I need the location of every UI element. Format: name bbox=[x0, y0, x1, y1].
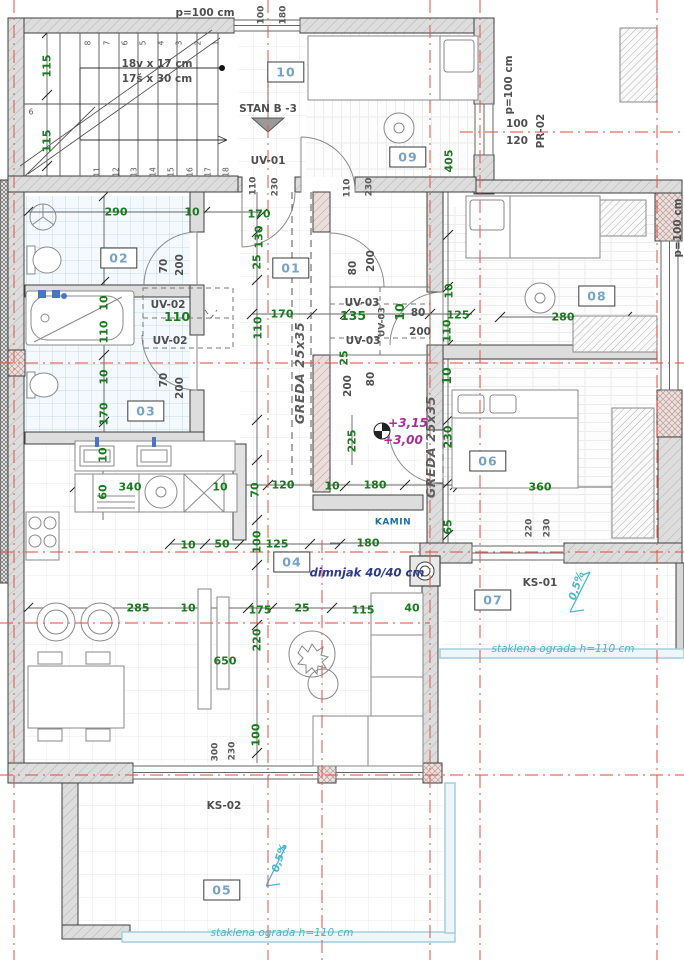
label-dim-25-c: 25 bbox=[294, 603, 309, 614]
label-door-02-h: 200 bbox=[175, 254, 186, 276]
label-door-hall-w: 80 bbox=[411, 308, 426, 319]
label-door-a-h: 230 bbox=[272, 178, 281, 197]
label-win-06-w: 220 bbox=[526, 519, 535, 538]
label-step-2: 2 bbox=[194, 41, 202, 46]
label-dim-25-b: 25 bbox=[339, 350, 350, 365]
room-tag-07: 07 bbox=[474, 590, 511, 611]
label-dim-10-e: 10 bbox=[441, 367, 454, 384]
label-dim-100-b: 100 bbox=[251, 724, 262, 747]
label-door-b-h: 230 bbox=[366, 178, 375, 197]
label-win-ks02-w: 300 bbox=[212, 743, 221, 762]
label-dimnjak: dimnjak 40/40 cm bbox=[310, 567, 425, 579]
label-dim-110-bold: 110 bbox=[164, 311, 190, 324]
label-dim-40: 40 bbox=[404, 603, 419, 614]
label-step-16: 16 bbox=[186, 167, 194, 177]
label-step-5: 5 bbox=[139, 41, 147, 46]
label-dim-110-a: 110 bbox=[99, 321, 110, 344]
label-dim-135: 135 bbox=[340, 310, 366, 323]
label-dim-340: 340 bbox=[119, 482, 142, 493]
label-door-hall-h: 200 bbox=[409, 327, 431, 338]
room-tag-01: 01 bbox=[272, 258, 309, 279]
label-dim-130: 130 bbox=[254, 226, 265, 249]
label-dim-10-d: 10 bbox=[394, 303, 407, 320]
label-dim-175: 175 bbox=[249, 605, 272, 616]
label-dim-225: 225 bbox=[347, 430, 358, 453]
label-step-15: 15 bbox=[167, 167, 175, 177]
label-step-8: 8 bbox=[84, 41, 92, 46]
label-dim-65: 65 bbox=[443, 519, 454, 534]
label-win-06-h: 230 bbox=[544, 519, 553, 538]
label-door-02-w: 70 bbox=[159, 259, 170, 274]
label-door-06-h: 200 bbox=[343, 375, 354, 397]
label-win-top-h: 180 bbox=[280, 6, 289, 25]
room-tag-06: 06 bbox=[469, 451, 506, 472]
label-uv-03-c: UV-03 bbox=[379, 307, 388, 337]
label-dim-10-i: 10 bbox=[212, 482, 227, 493]
label-slope-ks02: 0,5% bbox=[271, 843, 290, 874]
label-dim-650: 650 bbox=[214, 656, 237, 667]
label-dim-170-a: 170 bbox=[248, 209, 271, 220]
label-railing-ks01: staklena ograda h=110 cm bbox=[491, 644, 634, 655]
label-stan-entry: STAN B -3 bbox=[239, 104, 297, 115]
room-tag-08: 08 bbox=[578, 286, 615, 307]
label-parapet-right: p=100 cm bbox=[673, 198, 684, 257]
label-step-12: 12 bbox=[112, 167, 120, 177]
label-dim-10-g: 10 bbox=[324, 481, 339, 492]
label-dim-10-a: 10 bbox=[184, 207, 199, 218]
label-dim-10-h: 10 bbox=[98, 447, 109, 462]
label-greda-b: GREDA 25x35 bbox=[425, 396, 438, 498]
floor-plan-canvas: p=100 cm10018018v x 17 cm17š x 30 cm1151… bbox=[0, 0, 684, 960]
label-dim-25-a: 25 bbox=[252, 254, 263, 269]
room-tag-04: 04 bbox=[273, 552, 310, 573]
label-dim-170-c: 170 bbox=[271, 309, 294, 320]
room-tag-03: 03 bbox=[127, 401, 164, 422]
label-win-ks02-h: 230 bbox=[229, 742, 238, 761]
label-dim-10-c: 10 bbox=[99, 369, 110, 384]
label-dim-360: 360 bbox=[529, 482, 552, 493]
label-dim-10-j: 10 bbox=[180, 540, 195, 551]
label-dim-110-d: 110 bbox=[442, 320, 453, 343]
label-dim-290: 290 bbox=[105, 207, 128, 218]
label-parapet-top: p=100 cm bbox=[175, 8, 234, 19]
label-uv-03-b: UV-03 bbox=[346, 336, 381, 347]
label-slope-ks01: 0,5% bbox=[568, 571, 587, 602]
label-layer: p=100 cm10018018v x 17 cm17š x 30 cm1151… bbox=[0, 0, 684, 960]
label-dim-180-a: 180 bbox=[364, 480, 387, 491]
label-dim-285: 285 bbox=[127, 603, 150, 614]
label-step-17: 17 bbox=[204, 167, 212, 177]
label-win-pr-h: 120 bbox=[506, 136, 528, 147]
label-door-b-w: 110 bbox=[344, 179, 353, 198]
label-dim-125-b: 125 bbox=[266, 539, 289, 550]
label-dim-10-f: 10 bbox=[444, 283, 455, 298]
label-dim-230-a: 230 bbox=[443, 426, 454, 449]
label-stair-note-2: 17š x 30 cm bbox=[122, 74, 192, 85]
label-dim-180-b: 180 bbox=[357, 538, 380, 549]
label-step-14: 14 bbox=[149, 167, 157, 177]
label-door-01-w: 80 bbox=[348, 261, 359, 276]
label-door-03-h: 200 bbox=[175, 377, 186, 399]
label-dim-50: 50 bbox=[214, 539, 229, 550]
label-win-pr-w: 100 bbox=[506, 119, 528, 130]
room-tag-09: 09 bbox=[389, 147, 426, 168]
label-parapet-09: p=100 cm bbox=[504, 55, 515, 114]
label-dim-280: 280 bbox=[552, 312, 575, 323]
label-dim-115-b: 115 bbox=[42, 130, 53, 153]
label-level-lower: +3,00 bbox=[383, 434, 423, 446]
label-step-11: 11 bbox=[93, 167, 101, 177]
label-greda-a: GREDA 25x35 bbox=[294, 322, 307, 424]
label-dim-60: 60 bbox=[98, 484, 109, 499]
label-stair-note-1: 18v x 17 cm bbox=[122, 59, 193, 70]
label-uv-02-b: UV-02 bbox=[153, 336, 188, 347]
label-dim-220: 220 bbox=[252, 629, 263, 652]
label-dim-115-a: 115 bbox=[42, 55, 53, 78]
label-dim-405: 405 bbox=[444, 150, 455, 173]
label-uv-03-a: UV-03 bbox=[345, 298, 380, 309]
label-dim-170-b: 170 bbox=[99, 403, 110, 426]
room-tag-02: 02 bbox=[100, 248, 137, 269]
label-step-7: 7 bbox=[103, 41, 111, 46]
label-step-18: 18 bbox=[222, 167, 230, 177]
label-level-upper: +3,15 bbox=[388, 417, 428, 429]
label-step-6l: 6 bbox=[29, 108, 34, 116]
label-dim-70-c: 70 bbox=[250, 482, 261, 497]
label-step-3: 3 bbox=[175, 41, 183, 46]
label-dim-10-b: 10 bbox=[99, 295, 110, 310]
label-dim-100-a: 100 bbox=[252, 531, 263, 554]
label-dim-10-k: 10 bbox=[180, 603, 195, 614]
label-dim-120: 120 bbox=[272, 480, 295, 491]
label-step-4: 4 bbox=[157, 41, 165, 46]
room-tag-10: 10 bbox=[267, 62, 304, 83]
label-door-06-w: 80 bbox=[366, 372, 377, 387]
label-uv-01: UV-01 bbox=[251, 156, 286, 167]
room-tag-05: 05 bbox=[203, 880, 240, 901]
label-win-top-w: 100 bbox=[258, 6, 267, 25]
label-door-03-w: 70 bbox=[159, 373, 170, 388]
label-step-6: 6 bbox=[121, 41, 129, 46]
label-pr-02: PR-02 bbox=[536, 114, 547, 149]
label-kamin: KAMIN bbox=[375, 519, 411, 528]
label-ks-02: KS-02 bbox=[207, 801, 242, 812]
label-door-01-h: 200 bbox=[366, 250, 377, 272]
label-railing-ks02: staklena ograda h=110 cm bbox=[210, 928, 353, 939]
label-dim-110-c: 110 bbox=[253, 317, 264, 340]
label-ks-01: KS-01 bbox=[523, 578, 558, 589]
label-door-a-w: 110 bbox=[250, 177, 259, 196]
label-dim-115-c: 115 bbox=[352, 605, 375, 616]
label-step-1: 1 bbox=[212, 41, 220, 46]
label-step-13: 13 bbox=[130, 167, 138, 177]
